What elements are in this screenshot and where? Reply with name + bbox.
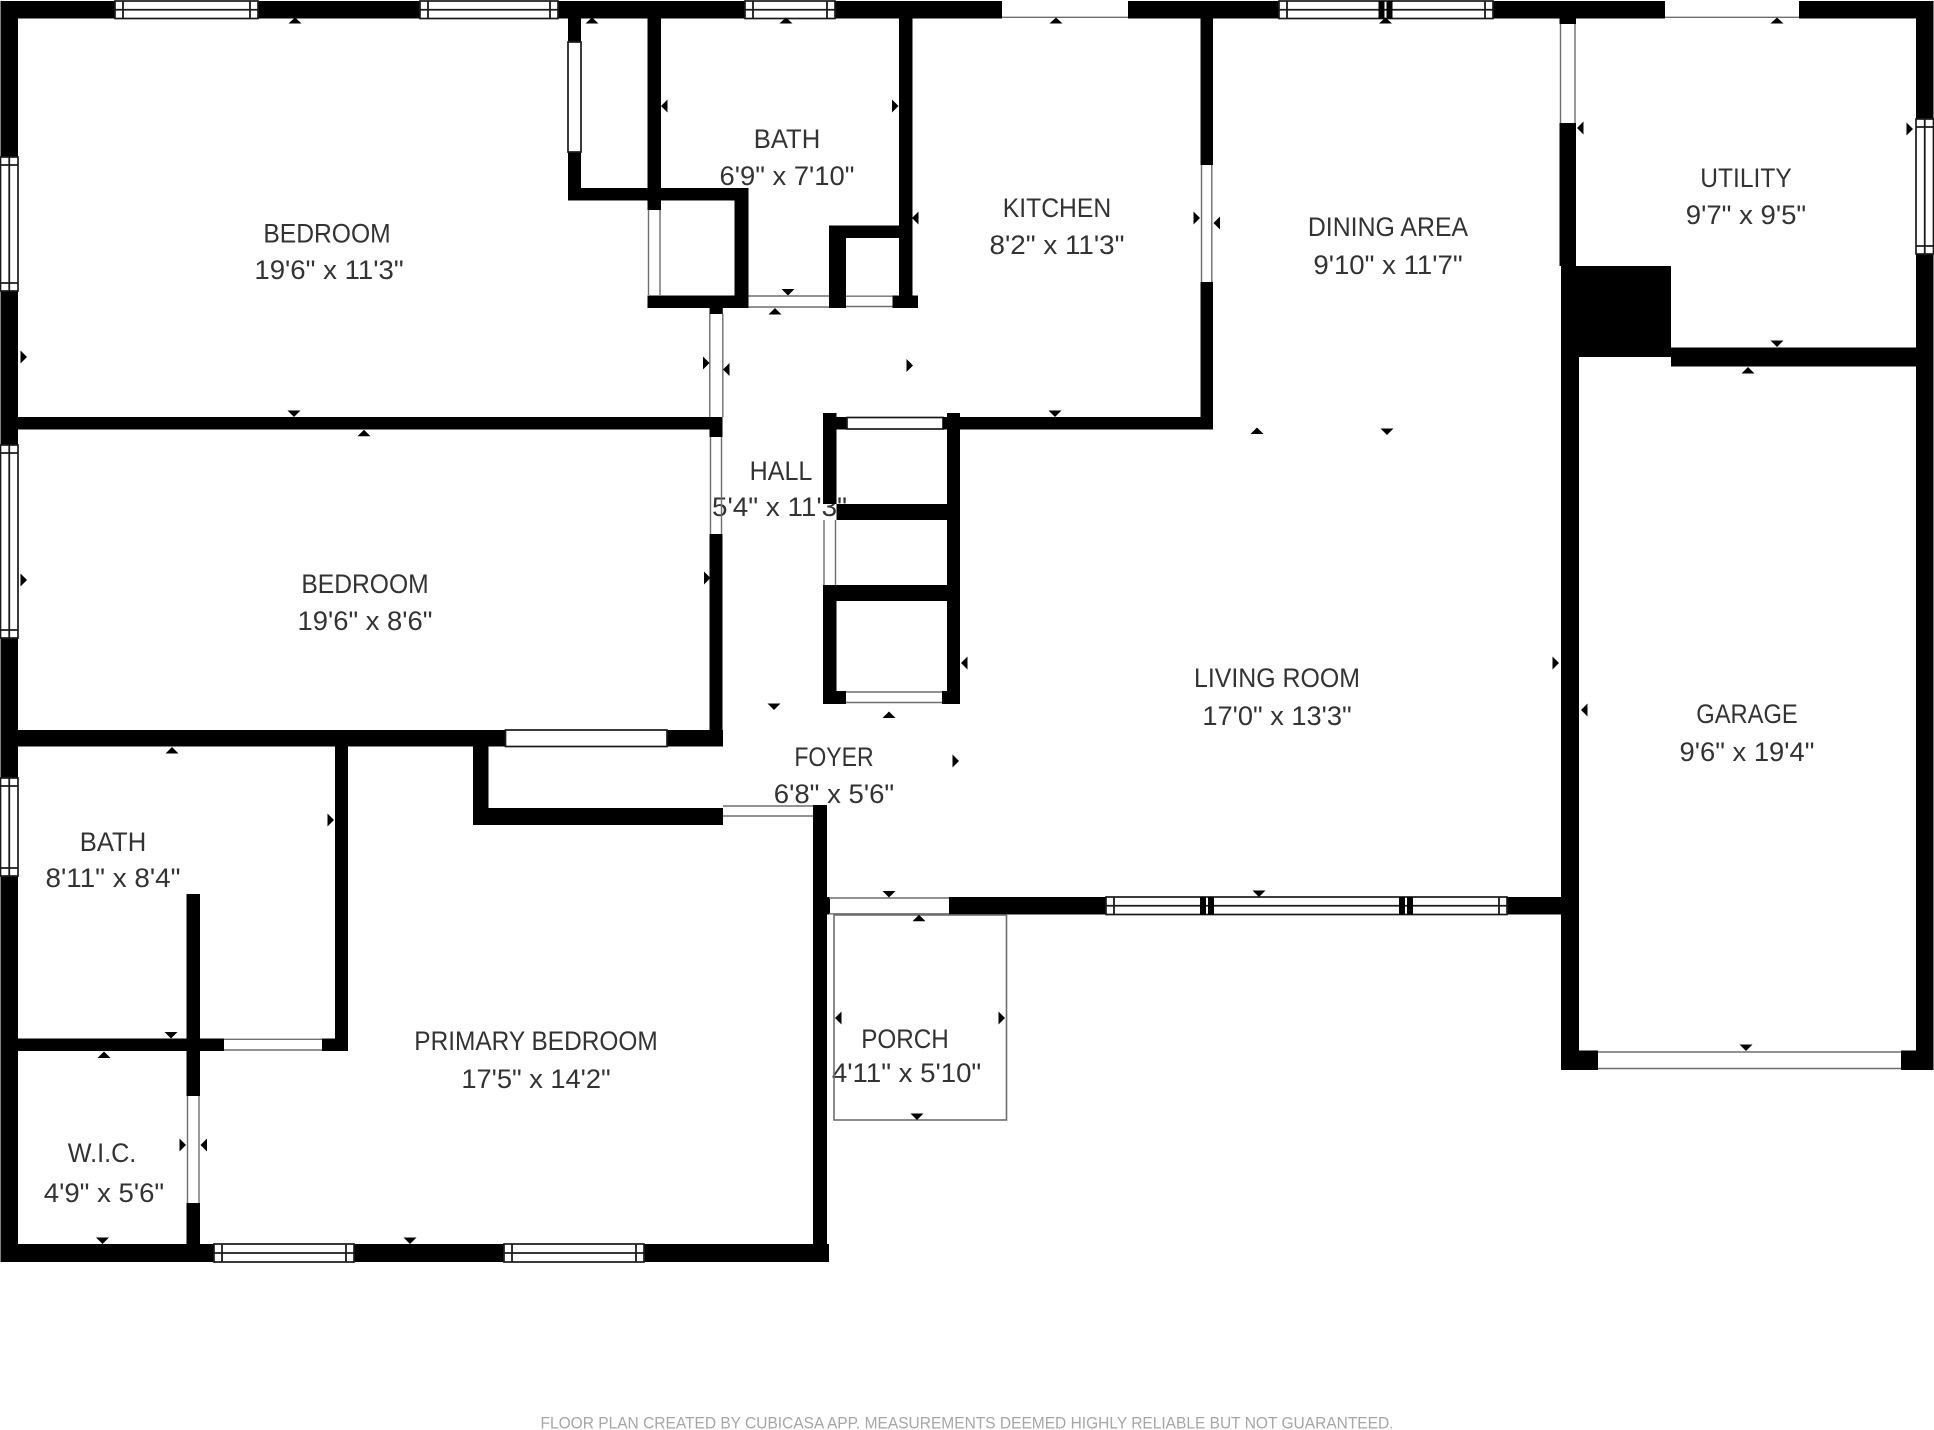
svg-text:BATH: BATH [80,827,147,857]
svg-text:8'11" x 8'4": 8'11" x 8'4" [46,863,181,893]
svg-text:LIVING ROOM: LIVING ROOM [1194,663,1360,693]
svg-text:9'7" x 9'5": 9'7" x 9'5" [1686,200,1806,230]
svg-text:8'2" x 11'3": 8'2" x 11'3" [990,230,1125,260]
svg-text:BATH: BATH [754,124,821,154]
svg-text:UTILITY: UTILITY [1700,163,1791,193]
svg-text:6'8" x 5'6": 6'8" x 5'6" [774,779,894,809]
svg-text:4'11" x 5'10": 4'11" x 5'10" [832,1058,981,1088]
svg-text:FOYER: FOYER [794,742,873,772]
svg-text:PORCH: PORCH [861,1024,949,1054]
svg-text:4'9" x 5'6": 4'9" x 5'6" [44,1178,164,1208]
svg-text:GARAGE: GARAGE [1696,699,1798,729]
svg-text:BEDROOM: BEDROOM [263,219,390,249]
svg-text:DINING AREA: DINING AREA [1308,212,1468,242]
svg-text:6'9" x 7'10": 6'9" x 7'10" [720,161,855,191]
svg-text:BEDROOM: BEDROOM [301,569,428,599]
svg-text:9'6" x 19'4": 9'6" x 19'4" [1680,737,1815,767]
svg-text:KITCHEN: KITCHEN [1003,193,1111,223]
svg-text:19'6" x 8'6": 19'6" x 8'6" [298,606,433,636]
svg-text:9'10" x 11'7": 9'10" x 11'7" [1313,250,1462,280]
svg-text:17'5" x 14'2": 17'5" x 14'2" [461,1064,610,1094]
svg-text:17'0" x 13'3": 17'0" x 13'3" [1202,701,1351,731]
svg-text:PRIMARY BEDROOM: PRIMARY BEDROOM [414,1026,657,1056]
svg-text:FLOOR PLAN CREATED BY CUBICASA: FLOOR PLAN CREATED BY CUBICASA APP. MEAS… [541,1415,1394,1430]
svg-text:19'6" x 11'3": 19'6" x 11'3" [254,255,403,285]
svg-text:HALL: HALL [750,456,813,486]
svg-text:W.I.C.: W.I.C. [68,1138,137,1168]
